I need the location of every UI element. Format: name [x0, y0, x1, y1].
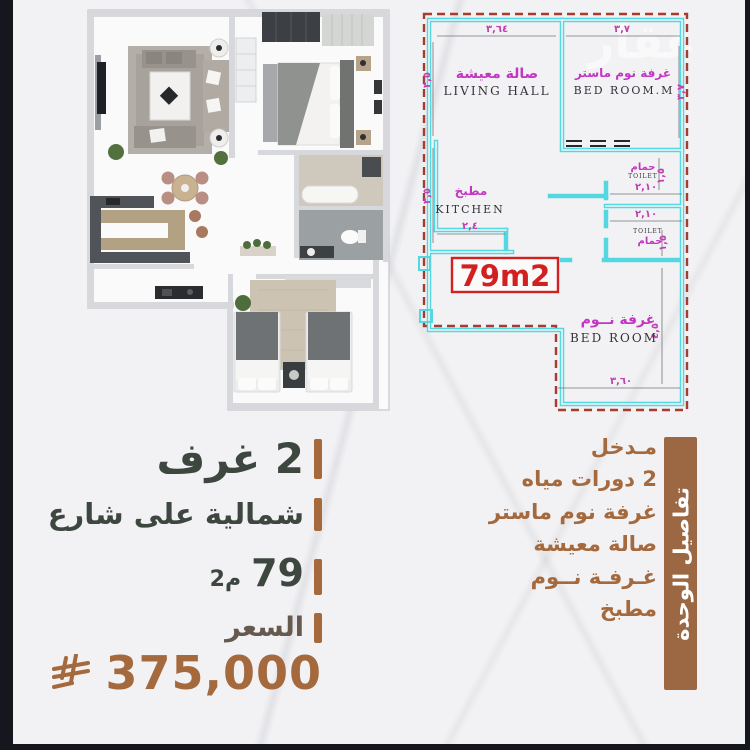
- spec-price-label: السعر: [225, 612, 322, 643]
- frame-left-bar: [0, 0, 13, 750]
- watermark-text: عقار: [586, 15, 696, 69]
- 3d-bathroom-2: [299, 210, 383, 260]
- spec-area: م2 79: [210, 551, 322, 595]
- feature-kitchen: مطبخ: [600, 597, 657, 621]
- dim-kitchen-bottom: ٢,٤: [462, 221, 478, 232]
- area-box-text: 79m2: [460, 259, 551, 293]
- unit-details-banner-text: تفاصيل الوحدة: [664, 437, 697, 690]
- dim-toilet2-width: ٢,١٠: [635, 209, 657, 220]
- label-living-ar: صالة معيشة: [456, 66, 538, 82]
- bed-2: [306, 312, 352, 392]
- price-label-text: السعر: [225, 612, 304, 643]
- label-kitchen-ar: مطبخ: [455, 184, 488, 198]
- tv-unit: [97, 62, 106, 114]
- label-kitchen-en: KITCHEN: [435, 203, 505, 216]
- label-toilet1-en: TOILET: [628, 173, 658, 180]
- 3d-bathroom-1: [299, 155, 383, 206]
- dim-living-top: ٣,٦٤: [486, 24, 508, 35]
- rooms-count-text: 2 غرف: [157, 434, 304, 483]
- accent-bar: [314, 613, 322, 643]
- 3d-console-table: [155, 286, 203, 299]
- accent-bar: [314, 439, 322, 479]
- label-toilet2-en: TOILET: [633, 228, 663, 235]
- spec-orientation: شمالية على شارع: [48, 497, 322, 531]
- orientation-text: شمالية على شارع: [48, 497, 304, 531]
- accent-bar: [314, 498, 322, 531]
- label-bedroom-en: BED ROOM: [570, 331, 658, 345]
- real-estate-poster: عقار: [0, 0, 750, 750]
- frame-bottom-bar: [0, 744, 750, 750]
- label-master-en: BED ROOM.M: [574, 84, 675, 97]
- dim-toilet1-width: ٢,١٠: [635, 182, 657, 193]
- dim-kitchen-left: ٣,٥: [422, 188, 433, 204]
- label-living-en: LIVING HALL: [443, 84, 550, 98]
- feature-bedroom: غـرفـة نــوم: [531, 565, 657, 589]
- label-toilet1-ar: حمام: [631, 162, 656, 173]
- feature-living-hall: صالة معيشة: [533, 532, 657, 556]
- label-master-ar: غرفة نوم ماستر: [574, 66, 671, 81]
- plant: [235, 295, 251, 311]
- bed-1: [234, 312, 280, 392]
- spec-price-value: 375,000: [51, 646, 322, 700]
- feature-entrance: مـدخل: [591, 435, 657, 459]
- plant: [214, 151, 228, 165]
- area-box: 79m2: [452, 258, 558, 293]
- dim-master-top: ٣,٧: [614, 24, 630, 35]
- label-bedroom-ar: غرفة نــوم: [581, 312, 656, 328]
- floorplan-2d-cad: عقار: [405, 5, 750, 423]
- price-value-text: 375,000: [105, 646, 322, 700]
- dim-master-right: ٣,٧: [676, 84, 687, 100]
- dim-bedroom-bottom: ٣,٦٠: [610, 376, 632, 387]
- spec-rooms-count: 2 غرف: [157, 434, 322, 483]
- dim-living-left: ٣,٥: [422, 72, 433, 88]
- feature-master-bedroom: غرفة نوم ماستر: [489, 500, 657, 524]
- door-dashes: [566, 141, 630, 146]
- saudi-riyal-symbol-icon: [51, 654, 91, 692]
- feature-bathrooms: 2 دورات مياه: [522, 467, 657, 491]
- floorplan-3d-render: [80, 5, 398, 417]
- label-toilet2-ar: حمام: [638, 236, 663, 247]
- frame-right-bar: [745, 0, 750, 750]
- plant: [108, 144, 124, 160]
- area-value-text: 79: [251, 551, 304, 595]
- 3d-hall-closet: [236, 38, 256, 102]
- accent-bar: [314, 559, 322, 595]
- area-unit-text: م2: [210, 567, 241, 595]
- unit-details-banner: تفاصيل الوحدة: [664, 437, 697, 690]
